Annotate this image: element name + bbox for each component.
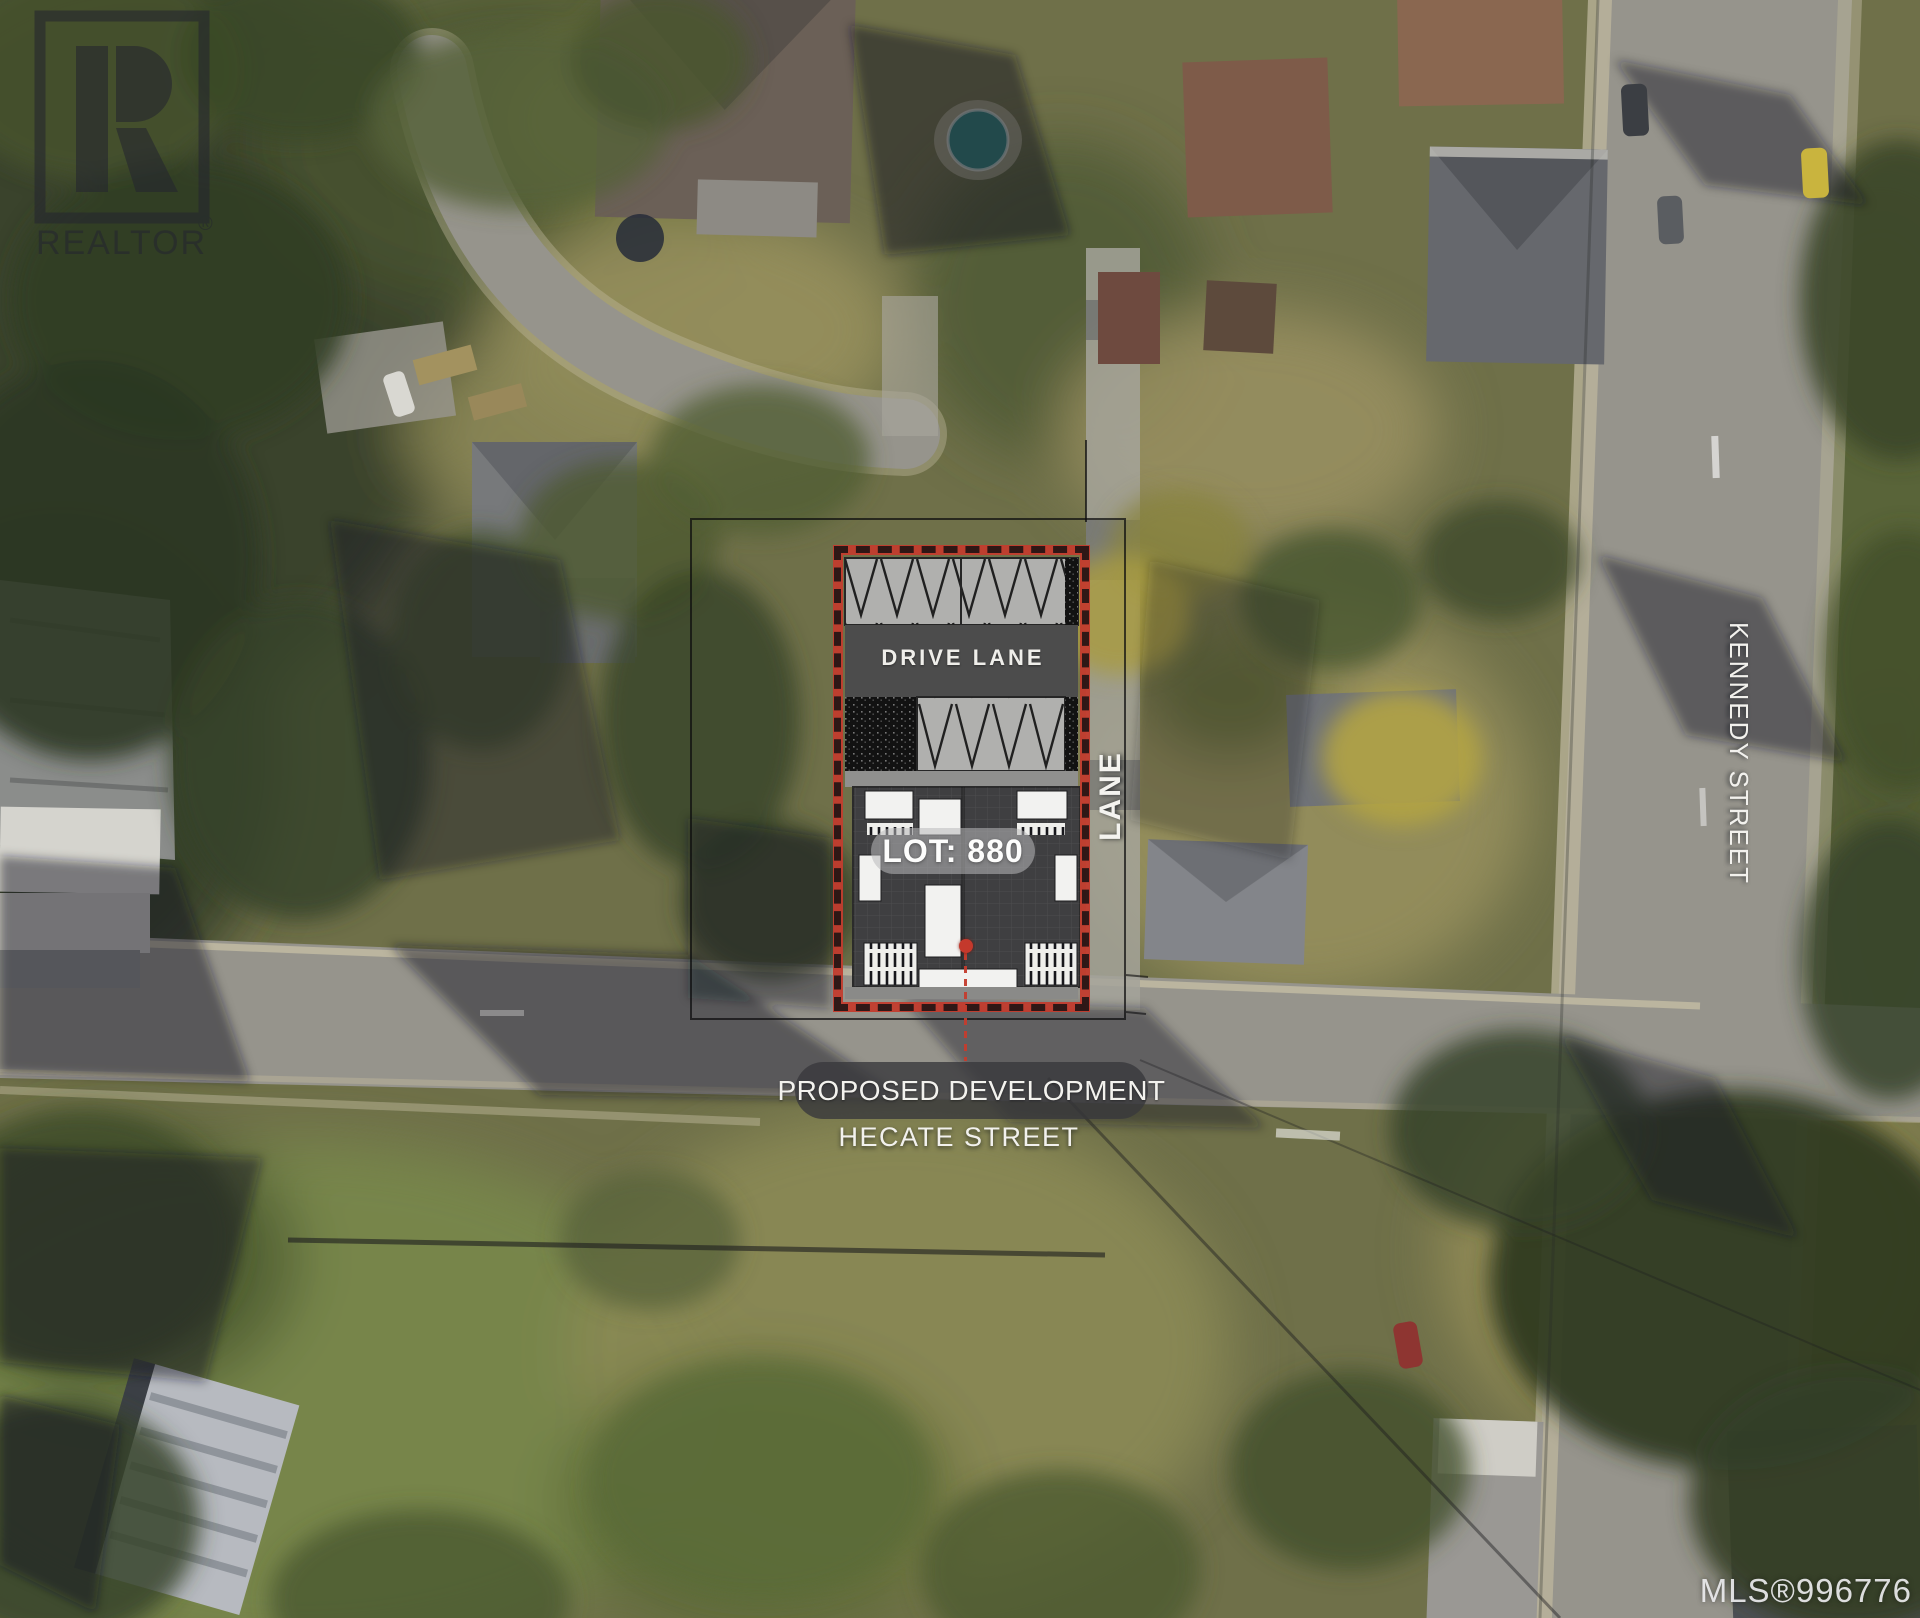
- house-terracotta-upper: [1397, 0, 1564, 106]
- yellow-tree: [1322, 690, 1482, 826]
- dark-car: [1621, 83, 1650, 136]
- site-plan-drawing: [843, 555, 1080, 1002]
- walkway-strip: [845, 771, 1078, 787]
- lot-area-badge: LOT: 880: [871, 828, 1035, 874]
- realtor-logo: ® REALTOR: [28, 8, 218, 260]
- shed-brown: [1203, 280, 1277, 354]
- mls-number: MLS®996776: [1700, 1572, 1912, 1610]
- realtor-watermark: ® REALTOR: [28, 8, 218, 260]
- survey-stub-line: [1085, 440, 1087, 522]
- house-terracotta: [1182, 57, 1332, 217]
- proposed-development-badge: PROPOSED DEVELOPMENT: [795, 1062, 1148, 1119]
- kennedy-street-label: KENNEDY STREET: [1722, 622, 1754, 832]
- house-gray-right: [1426, 146, 1608, 364]
- site-marker-dot-icon: [959, 939, 973, 953]
- lane-upper-path: [882, 296, 938, 436]
- realtor-wordmark: REALTOR: [36, 224, 208, 260]
- realtor-r-icon: [76, 46, 178, 192]
- hecate-street-label: HECATE STREET: [809, 1122, 1109, 1153]
- lane-street-label: LANE: [1094, 726, 1128, 866]
- drive-lane-label: DRIVE LANE: [843, 645, 1083, 671]
- storage-block: [845, 697, 917, 771]
- shed-red: [1098, 272, 1160, 364]
- leader-dashed-line: [964, 953, 967, 1061]
- yellow-car: [1801, 147, 1830, 198]
- trampoline: [616, 214, 664, 262]
- aerial-listing-image: DRIVE LANE LOT: 880 LANE PROPOSED DEVELO…: [0, 0, 1920, 1618]
- gray-car: [1657, 195, 1684, 244]
